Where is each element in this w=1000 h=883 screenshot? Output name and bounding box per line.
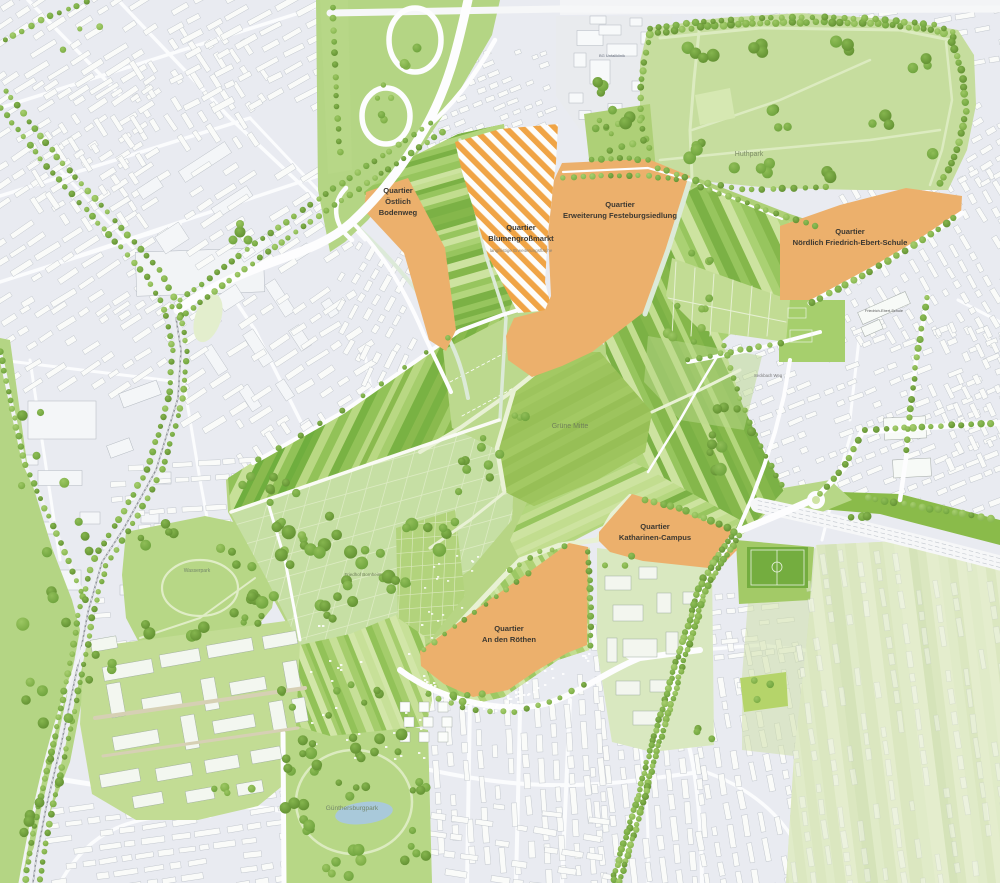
svg-text:Friedrich-Ebert-Schule: Friedrich-Ebert-Schule: [865, 309, 903, 313]
svg-text:Friedhof Bornheim: Friedhof Bornheim: [344, 572, 381, 577]
svg-text:Grüne Mitte: Grüne Mitte: [552, 423, 589, 430]
svg-text:Günthersburgpark: Günthersburgpark: [326, 805, 379, 812]
svg-text:BG Unfallklinik: BG Unfallklinik: [599, 53, 625, 58]
svg-text:Seckbach Weg: Seckbach Weg: [754, 373, 783, 378]
svg-text:langfristige Erweiterungsfläch: langfristige Erweiterungsfläche: [490, 248, 553, 253]
svg-text:Wasserpark: Wasserpark: [184, 568, 211, 574]
svg-text:Huthpark: Huthpark: [735, 151, 764, 158]
